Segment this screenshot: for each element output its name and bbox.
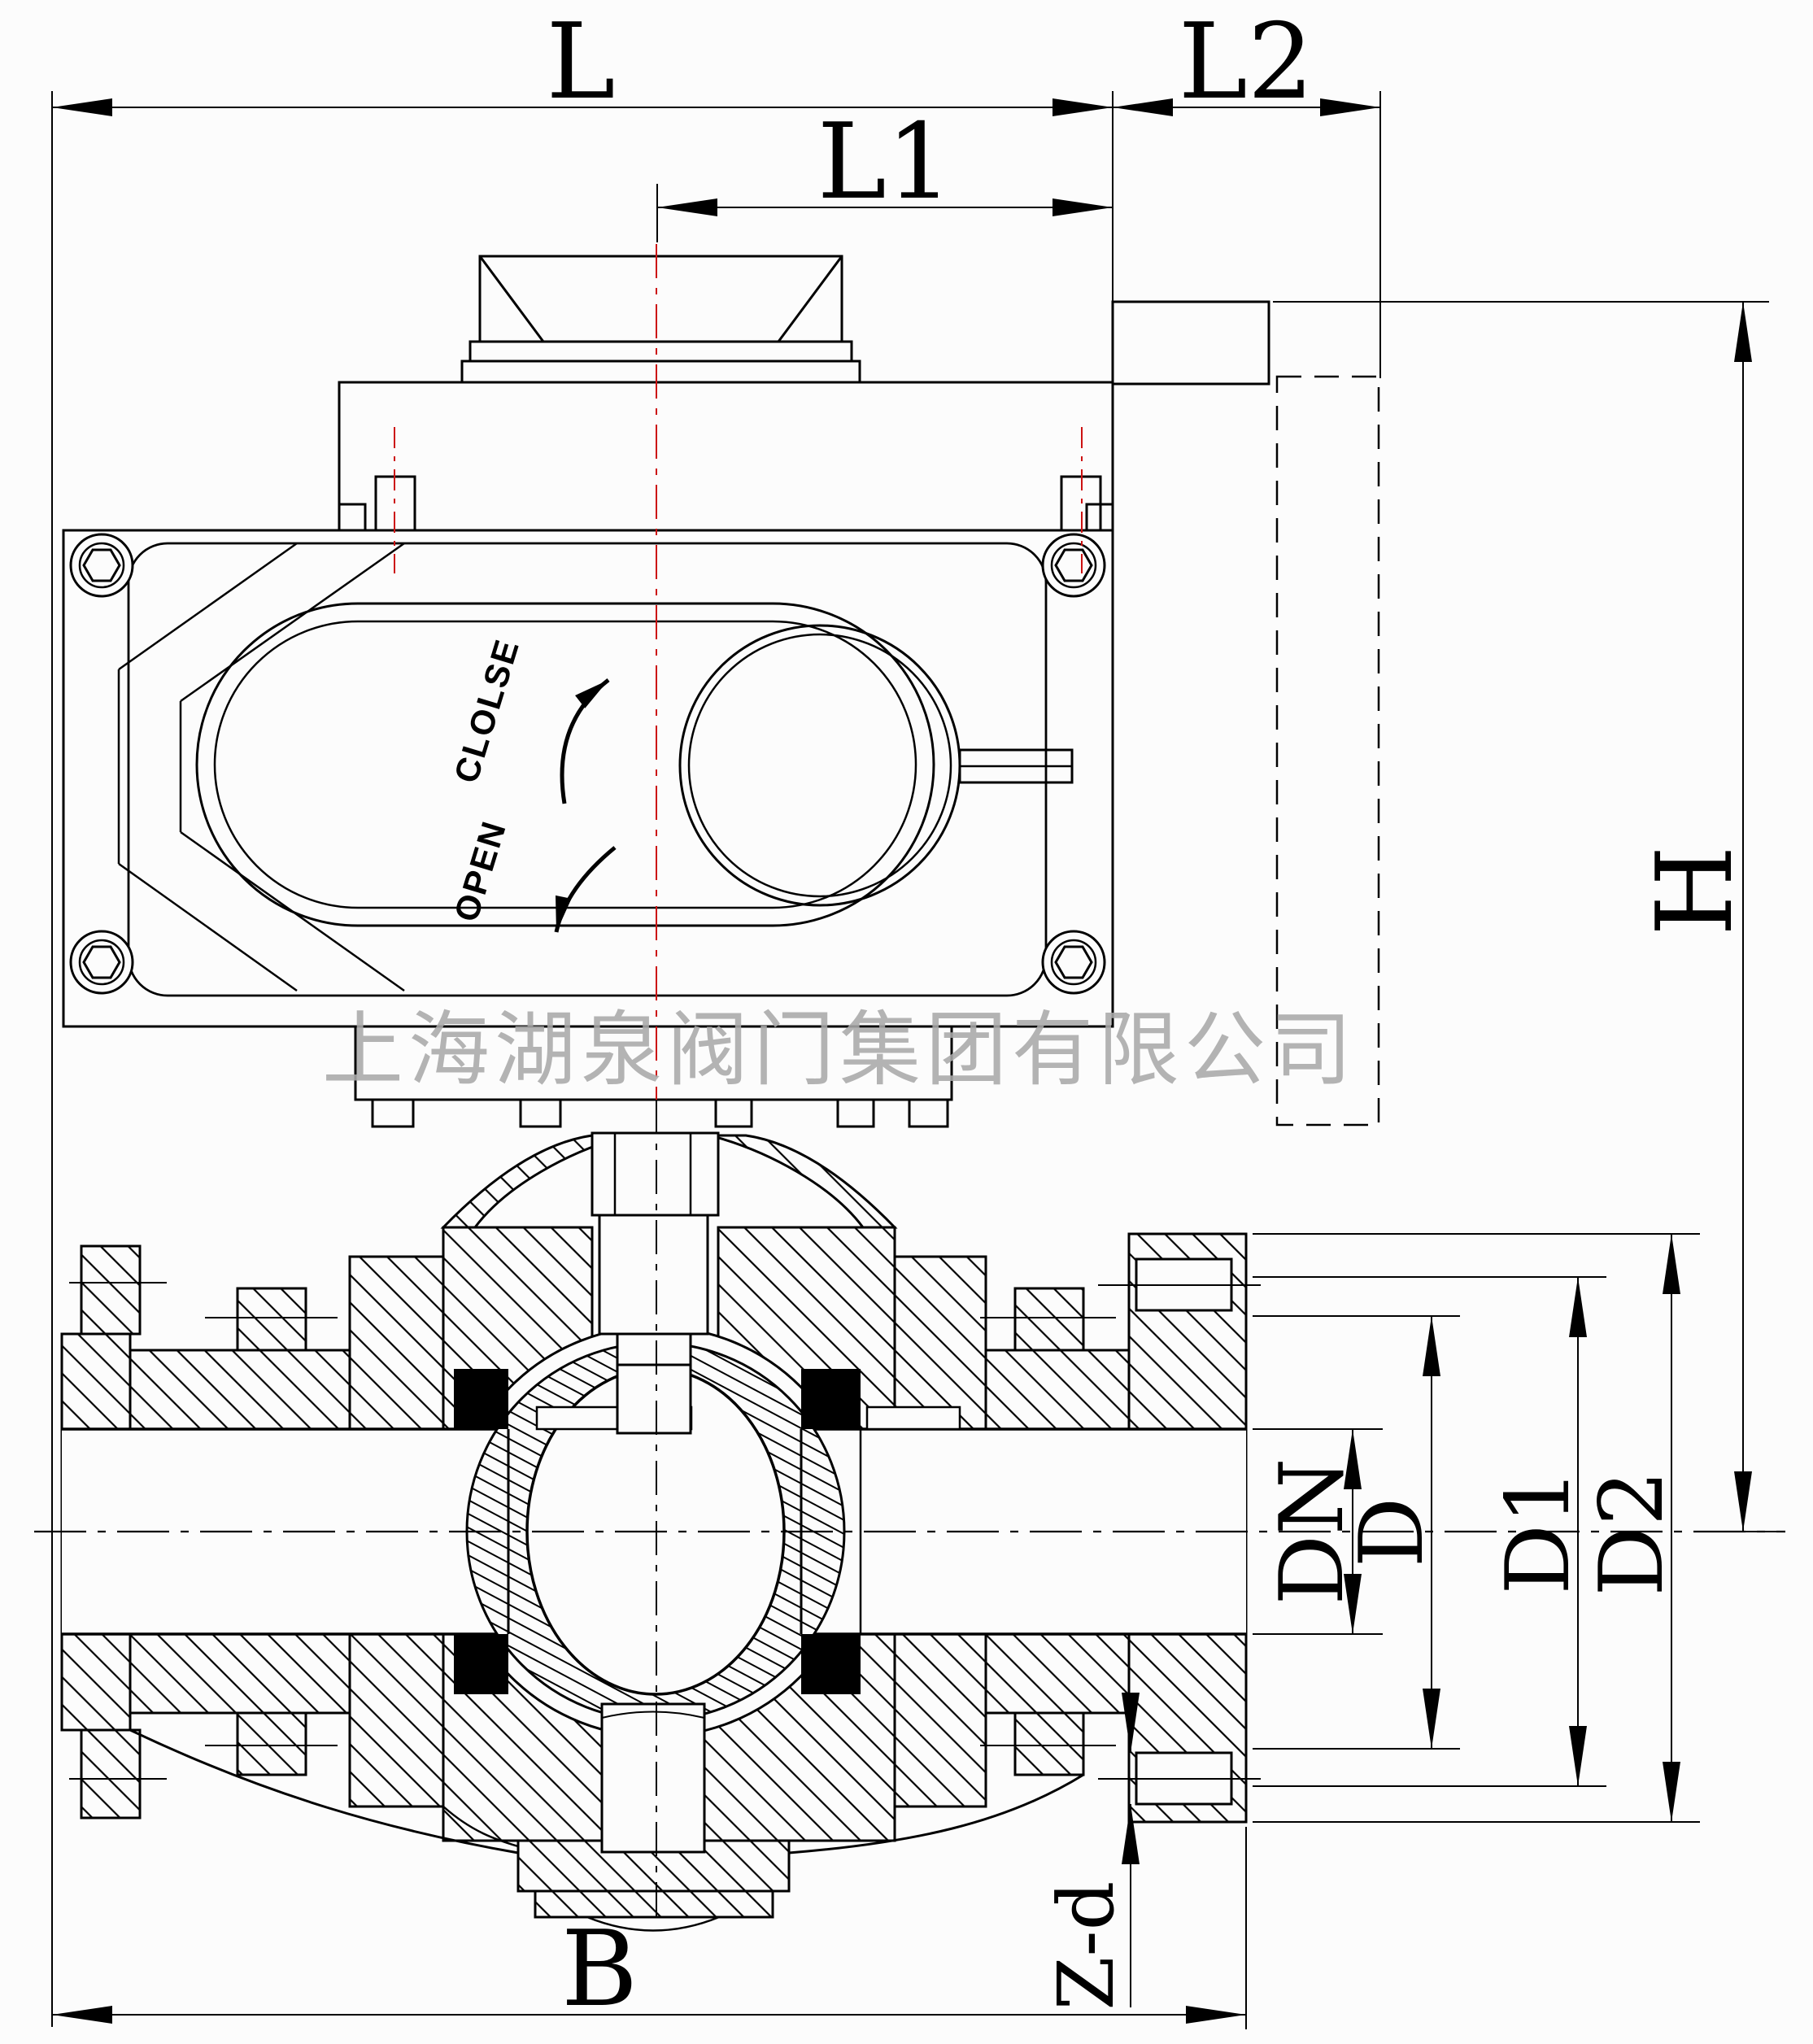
open-direction-arrow-icon — [556, 848, 615, 932]
stem — [599, 1215, 708, 1334]
bonnet-dome — [710, 1135, 895, 1227]
dim-label-L2: L2 — [1179, 2, 1314, 123]
actuator-side-block — [1113, 302, 1269, 384]
dim-label-H: H — [1635, 845, 1756, 936]
actuator-main-body — [63, 530, 1113, 1026]
dim-label-D2: D2 — [1581, 1470, 1683, 1596]
stem-top — [592, 1133, 718, 1215]
valve-technical-drawing: CLOLSE OPEN — [0, 0, 1813, 2044]
dim-label-L1: L1 — [817, 102, 952, 223]
dim-label-B: B — [561, 1909, 638, 2030]
gland — [350, 1257, 443, 1429]
company-watermark: 上海湖泉阀门集团有限公司 — [322, 1002, 1357, 1097]
open-label: OPEN — [447, 816, 513, 926]
left-flange-bolt-bottom — [81, 1730, 140, 1818]
left-flange-bolt-top — [81, 1246, 140, 1334]
dim-label-D1: D1 — [1488, 1468, 1589, 1594]
electric-actuator — [63, 256, 1379, 1125]
gland — [895, 1634, 986, 1806]
close-direction-arrow-icon — [562, 680, 608, 804]
union-bolt — [238, 1713, 306, 1775]
dim-label-L: L — [547, 2, 616, 123]
actuator-top-cap — [462, 256, 860, 382]
close-label: CLOLSE — [447, 634, 526, 787]
actuator-gear-housing — [339, 382, 1113, 530]
position-indicator-dial — [680, 625, 960, 905]
gland — [895, 1257, 986, 1429]
union-bolt — [1015, 1288, 1083, 1350]
stem-nut — [617, 1334, 691, 1365]
union-bolt — [238, 1288, 306, 1350]
dim-label-Zd: Z-d — [1042, 1881, 1131, 2011]
gland — [350, 1634, 443, 1806]
valve-body-section — [62, 1026, 1246, 1931]
dim-label-D: D — [1341, 1497, 1443, 1568]
engineering-drawing-sheet: CLOLSE OPEN — [0, 0, 1813, 2044]
union-bolt — [1015, 1713, 1083, 1775]
